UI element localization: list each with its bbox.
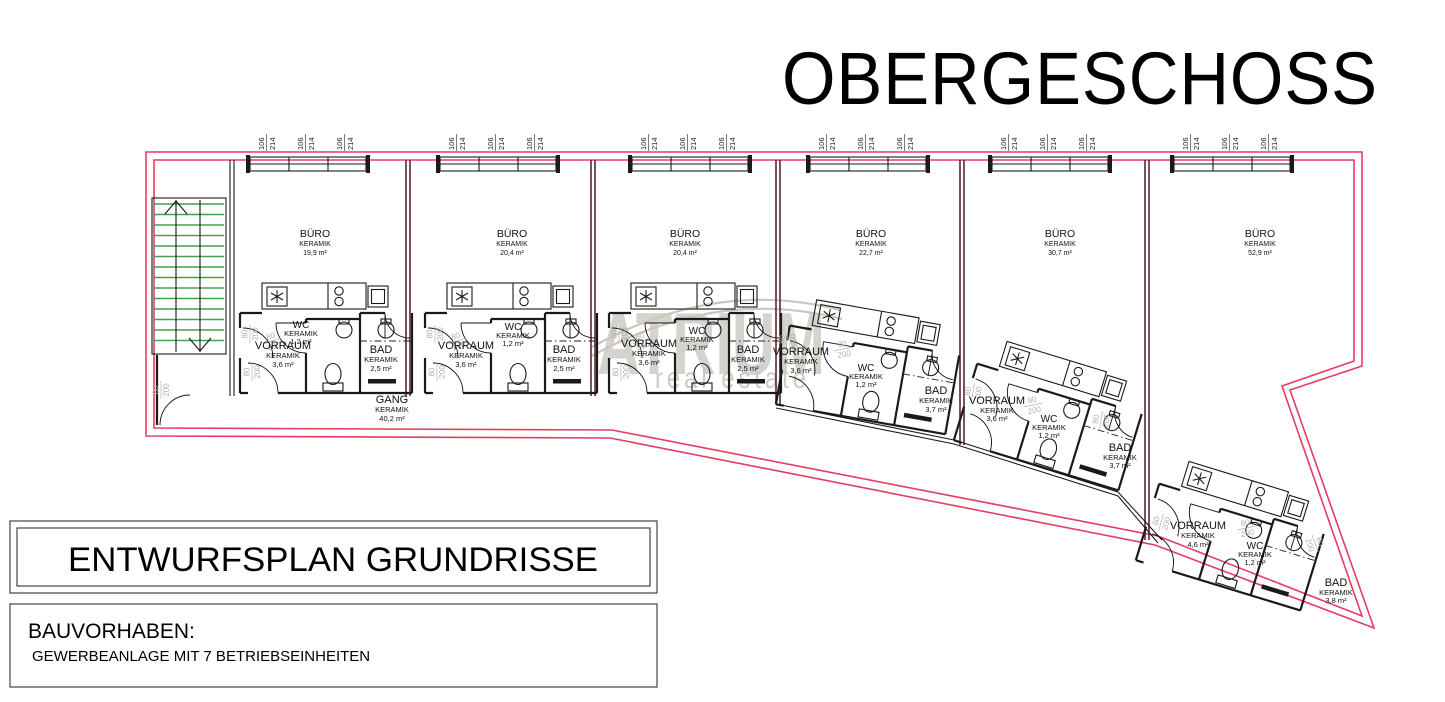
stove xyxy=(1101,375,1126,401)
wc-area: 1,2 m² xyxy=(290,337,312,346)
room-area: 22,7 m² xyxy=(859,250,883,257)
bad-material: KERAMIK xyxy=(364,355,398,364)
room-name: BÜRO xyxy=(300,228,330,240)
staircase xyxy=(152,198,226,354)
vorraum-area: 3,6 m² xyxy=(272,360,294,369)
radiator xyxy=(553,379,581,384)
sink-bowl xyxy=(1070,376,1080,386)
toilet xyxy=(1220,557,1241,582)
appliance-symbol-icon xyxy=(271,290,283,303)
window-dim-bottom: 214 xyxy=(728,137,737,150)
unit-separator-wall xyxy=(960,160,964,445)
window-dim-bottom: 214 xyxy=(1049,137,1058,150)
window-dim-top: 106 xyxy=(335,137,344,150)
door-dim-bottom: 200 xyxy=(253,365,262,379)
window-dim-top: 106 xyxy=(1259,137,1268,150)
window-dim-bottom: 214 xyxy=(650,137,659,150)
door-dim-bottom: 200 xyxy=(162,383,171,397)
window-dim-label: 106214 xyxy=(335,134,355,151)
door-dim-top: 80 xyxy=(243,367,252,376)
window-dim-bottom: 214 xyxy=(867,137,876,150)
window-dim-bottom: 214 xyxy=(458,137,467,150)
room-area: 30,7 m² xyxy=(1048,250,1072,257)
wall-pier xyxy=(926,155,930,173)
window-dim-label: 106214 xyxy=(257,134,277,151)
office-label: BÜRO KERAMIK 30,7 m² xyxy=(1044,228,1076,257)
stove-inner xyxy=(921,325,936,341)
window-dim-label: 106214 xyxy=(1077,134,1097,151)
stove-inner xyxy=(557,290,570,304)
sink-bowl xyxy=(335,287,343,295)
room-material: KERAMIK xyxy=(669,241,701,248)
windows: 1062141062141062141062141062141062141062… xyxy=(246,134,1294,173)
sink-bowl xyxy=(886,316,896,326)
vorraum-material: KERAMIK xyxy=(266,351,300,360)
window-dim-bottom: 214 xyxy=(497,137,506,150)
counter-divider xyxy=(877,311,882,337)
window-dim-label: 106214 xyxy=(1220,134,1240,151)
door-dim-bottom: 200 xyxy=(251,327,260,341)
vorraum-area: 3,6 m² xyxy=(790,366,812,375)
door-dim-bottom: 200 xyxy=(438,365,447,379)
bad-area: 3,8 m² xyxy=(1325,596,1347,605)
bad-area: 2,5 m² xyxy=(553,364,575,373)
window-dim-label: 106214 xyxy=(1259,134,1279,151)
gang-area: 40,2 m² xyxy=(379,414,405,423)
room-area: 20,4 m² xyxy=(673,250,697,257)
page-title: OBERGESCHOSS xyxy=(782,37,1378,120)
wall-pier xyxy=(246,155,250,173)
toilet xyxy=(325,364,341,385)
radiator xyxy=(1079,464,1107,476)
window-dim-bottom: 214 xyxy=(536,137,545,150)
window-dim-bottom: 214 xyxy=(1010,137,1019,150)
window-dim-top: 106 xyxy=(296,137,305,150)
window-dim-bottom: 214 xyxy=(268,137,277,150)
window-dim-top: 106 xyxy=(1038,137,1047,150)
wc-area: 1,2 m² xyxy=(686,343,708,352)
wall-pier xyxy=(1290,155,1294,173)
door-dim-bottom: 200 xyxy=(1101,413,1112,428)
door-dim-top: 80 xyxy=(837,339,848,350)
vorraum-area: 3,6 m² xyxy=(638,358,660,367)
window-dim-top: 106 xyxy=(1077,137,1086,150)
window-dim-label: 106214 xyxy=(678,134,698,151)
window-dim-label: 106214 xyxy=(296,134,316,151)
room-material: KERAMIK xyxy=(299,241,331,248)
floor-plan-canvas: ATRIUM real estate 106214106214106214106… xyxy=(0,0,1445,702)
wall-pier xyxy=(1108,155,1112,173)
window-dim-top: 106 xyxy=(895,137,904,150)
stove-inner xyxy=(1288,500,1305,517)
stove xyxy=(917,321,940,345)
door-dim-label: 80200 xyxy=(428,363,448,381)
sink-bowl xyxy=(1252,496,1262,506)
room-name: BÜRO xyxy=(670,228,700,240)
wall-pier xyxy=(988,155,992,173)
window-dim-top: 106 xyxy=(486,137,495,150)
office-labels: BÜRO KERAMIK 19,9 m² BÜRO KERAMIK 20,4 m… xyxy=(299,228,1276,257)
sanitary-core xyxy=(1136,455,1333,610)
window-dim-label: 106214 xyxy=(999,134,1019,151)
project-block-label: BAUVORHABEN: xyxy=(28,620,195,643)
radiator xyxy=(368,379,396,384)
door-dim-top: 80 xyxy=(777,334,787,344)
watermark-tagline: real estate xyxy=(655,362,810,395)
room-material: KERAMIK xyxy=(496,241,528,248)
radiator xyxy=(737,379,765,384)
vorraum-area: 3,6 m² xyxy=(986,414,1008,423)
kitchen-counter xyxy=(1181,461,1288,516)
sink-bowl xyxy=(335,297,343,305)
wall-pier xyxy=(806,155,810,173)
window-dim-label: 106214 xyxy=(817,134,837,151)
vorraum-area: 4,6 m² xyxy=(1187,540,1209,549)
floor-plan-page: ATRIUM real estate 106214106214106214106… xyxy=(0,0,1445,702)
office-label: BÜRO KERAMIK 52,9 m² xyxy=(1244,228,1276,257)
bad-area: 3,7 m² xyxy=(925,405,947,414)
counter-divider xyxy=(1245,481,1253,506)
stair-treads xyxy=(154,204,224,341)
window-dim-label: 106214 xyxy=(895,134,915,151)
window-dim-label: 106214 xyxy=(639,134,659,151)
appliance-symbol-icon xyxy=(1192,471,1207,487)
sink-bowl xyxy=(1255,486,1265,496)
bad-area: 2,5 m² xyxy=(737,364,759,373)
door-dim-label: 80200 xyxy=(243,363,263,381)
title-block-title: ENTWURFSPLAN GRUNDRISSE xyxy=(68,541,598,579)
title-block: ENTWURFSPLAN GRUNDRISSE xyxy=(10,521,657,593)
window-dim-top: 106 xyxy=(856,137,865,150)
window-dim-bottom: 214 xyxy=(1088,137,1097,150)
door-dim-top: 80 xyxy=(426,329,435,338)
window-dim-top: 106 xyxy=(525,137,534,150)
door-dim-top: 80 xyxy=(1091,414,1102,425)
vorraum-area: 3,6 m² xyxy=(455,360,477,369)
toilet xyxy=(1038,437,1059,462)
window-dim-label: 106214 xyxy=(447,134,467,151)
room-name: BÜRO xyxy=(856,228,886,240)
room-area: 52,9 m² xyxy=(1248,250,1272,257)
sink-bowl xyxy=(520,287,528,295)
unit-separator-wall xyxy=(406,160,410,396)
toilet xyxy=(510,364,526,385)
door-arc xyxy=(160,395,190,425)
kitchen-counter xyxy=(999,341,1106,396)
room-name: BÜRO xyxy=(497,228,527,240)
wall-pier xyxy=(436,155,440,173)
door-dim-bottom: 200 xyxy=(622,365,631,379)
radiator xyxy=(904,413,932,422)
door-dim-label: 80200 xyxy=(833,338,854,360)
door-dim-top: 80 xyxy=(1027,395,1038,406)
window-dim-top: 106 xyxy=(639,137,648,150)
unit-separator-wall xyxy=(591,160,595,396)
sink-bowl xyxy=(1073,366,1083,376)
stove-inner xyxy=(1106,380,1123,397)
window-dim-top: 106 xyxy=(817,137,826,150)
door-dim-top: 80 xyxy=(610,329,619,338)
window-dim-label: 106214 xyxy=(486,134,506,151)
wc-area: 1,2 m² xyxy=(1038,431,1060,440)
office-label: BÜRO KERAMIK 19,9 m² xyxy=(299,228,331,257)
bad-area: 3,7 m² xyxy=(1109,461,1131,470)
bad-material: KERAMIK xyxy=(547,355,581,364)
core-wall xyxy=(240,313,262,393)
unit-separator-wall xyxy=(1145,160,1149,540)
appliance-symbol-icon xyxy=(1010,351,1025,367)
window-dim-top: 106 xyxy=(717,137,726,150)
vorraum-material: KERAMIK xyxy=(449,351,483,360)
door-dim-label: 80200 xyxy=(1235,517,1257,540)
door-dim-top: 80 xyxy=(612,367,621,376)
project-block: BAUVORHABEN: GEWERBEANLAGE MIT 7 BETRIEB… xyxy=(10,604,657,687)
window-dim-top: 106 xyxy=(1181,137,1190,150)
wc-area: 1,2 m² xyxy=(1244,558,1266,567)
room-name: BÜRO xyxy=(1045,228,1075,240)
vorraum-material: KERAMIK xyxy=(784,357,818,366)
room-area: 20,4 m² xyxy=(500,250,524,257)
appliance-symbol-icon xyxy=(456,290,468,303)
wc-area: 1,2 m² xyxy=(502,339,524,348)
window-dim-top: 106 xyxy=(999,137,1008,150)
room-material: KERAMIK xyxy=(1244,241,1276,248)
window-dim-label: 106214 xyxy=(717,134,737,151)
door-dim-top: 80 xyxy=(428,367,437,376)
window-dim-label: 106214 xyxy=(525,134,545,151)
window-dim-bottom: 214 xyxy=(346,137,355,150)
wall-pier xyxy=(748,155,752,173)
door-dim-bottom: 200 xyxy=(436,327,445,341)
wall-pier xyxy=(556,155,560,173)
window-dim-bottom: 214 xyxy=(1270,137,1279,150)
wall-pier xyxy=(366,155,370,173)
room-area: 19,9 m² xyxy=(303,250,327,257)
window-dim-top: 106 xyxy=(1220,137,1229,150)
project-block-description: GEWERBEANLAGE MIT 7 BETRIEBSEINHEITEN xyxy=(32,648,370,665)
door-dim-top: 80 xyxy=(152,385,161,394)
core-wall xyxy=(1136,484,1324,611)
door-dim-label: 80200 xyxy=(1090,410,1112,431)
stove-inner xyxy=(372,290,385,304)
window-dim-top: 106 xyxy=(257,137,266,150)
wall-pier xyxy=(628,155,632,173)
vorraum-material: KERAMIK xyxy=(1181,531,1215,540)
stair-bay-wall xyxy=(230,160,234,396)
window-dim-bottom: 214 xyxy=(307,137,316,150)
window-dim-bottom: 214 xyxy=(906,137,915,150)
room-name: BÜRO xyxy=(1245,228,1275,240)
sink-bowl xyxy=(884,327,894,337)
bad-area: 2,5 m² xyxy=(370,364,392,373)
window-dim-label: 106214 xyxy=(1038,134,1058,151)
window-dim-top: 106 xyxy=(678,137,687,150)
window-dim-label: 106214 xyxy=(856,134,876,151)
bad-material: KERAMIK xyxy=(731,355,765,364)
office-label: BÜRO KERAMIK 20,4 m² xyxy=(669,228,701,257)
window-dim-label: 106214 xyxy=(1181,134,1201,151)
gang-material: KERAMIK xyxy=(375,405,409,414)
sink-bowl xyxy=(520,297,528,305)
office-label: BÜRO KERAMIK 20,4 m² xyxy=(496,228,528,257)
window-dim-bottom: 214 xyxy=(828,137,837,150)
vorraum-material: KERAMIK xyxy=(632,349,666,358)
project-block-border xyxy=(10,604,657,687)
door-dim-top: 80 xyxy=(1240,518,1251,529)
window-dim-bottom: 214 xyxy=(689,137,698,150)
window-dim-bottom: 214 xyxy=(1192,137,1201,150)
counter-divider xyxy=(1063,361,1071,386)
wall-pier xyxy=(1170,155,1174,173)
core-wall xyxy=(425,313,447,393)
door-dim-top: 80 xyxy=(241,329,250,338)
window-dim-top: 106 xyxy=(447,137,456,150)
door-dim-bottom: 200 xyxy=(837,349,852,360)
stove xyxy=(1283,495,1308,521)
wc-area: 1,2 m² xyxy=(855,380,877,389)
room-material: KERAMIK xyxy=(855,241,887,248)
stair-stringers xyxy=(176,200,200,352)
door-dim-bottom: 200 xyxy=(1240,527,1255,539)
window-dim-bottom: 214 xyxy=(1231,137,1240,150)
bad-material: KERAMIK xyxy=(919,396,953,405)
room-material: KERAMIK xyxy=(1044,241,1076,248)
office-label: BÜRO KERAMIK 22,7 m² xyxy=(855,228,887,257)
